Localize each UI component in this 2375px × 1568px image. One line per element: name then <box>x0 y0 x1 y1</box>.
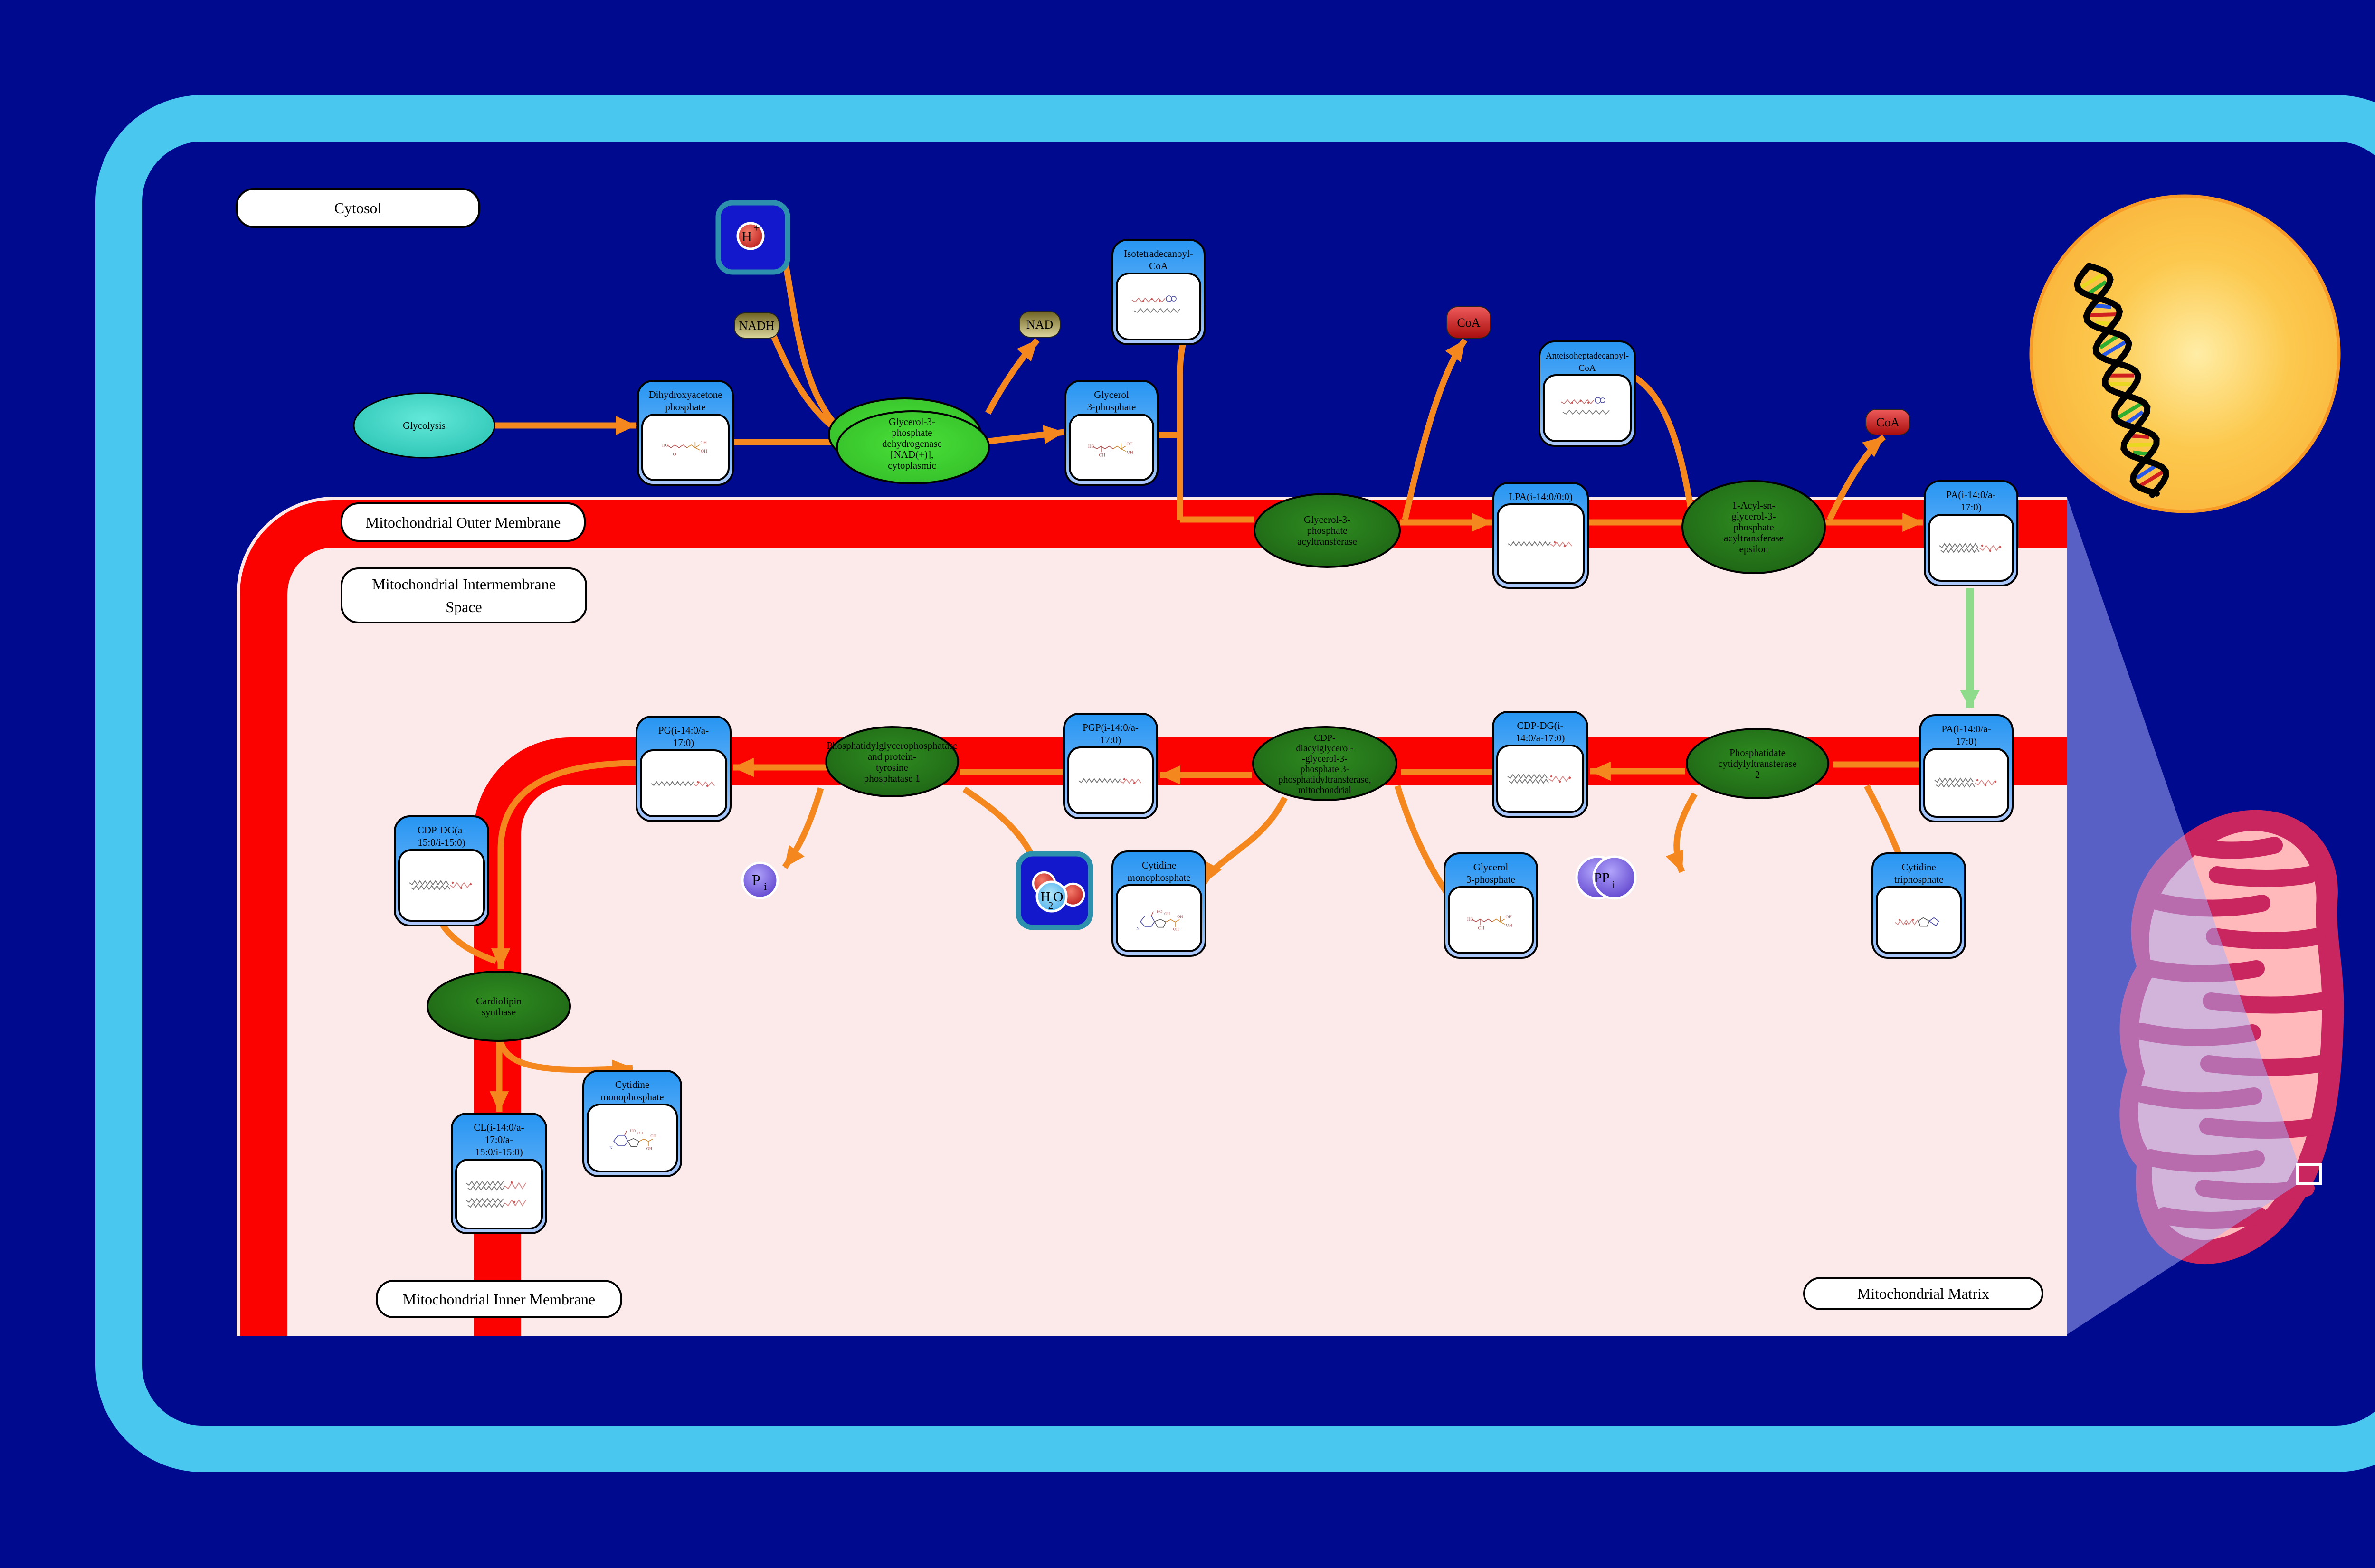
svg-text:phosphate: phosphate <box>1733 521 1774 533</box>
svg-text:PA(i-14:0/a-: PA(i-14:0/a- <box>1941 723 1991 735</box>
svg-text:15:0/i-15:0): 15:0/i-15:0) <box>418 837 465 848</box>
svg-text:i: i <box>764 880 767 892</box>
svg-text:CoA: CoA <box>1457 316 1480 330</box>
svg-text:phosphate: phosphate <box>665 401 705 413</box>
svg-text:N: N <box>1136 926 1139 931</box>
svg-text:diacylglycerol-: diacylglycerol- <box>1296 743 1353 754</box>
svg-text:phosphatase 1: phosphatase 1 <box>864 773 920 784</box>
svg-text:HO: HO <box>630 1128 636 1133</box>
svg-text:17:0): 17:0) <box>1960 501 1981 513</box>
svg-text:CDP-: CDP- <box>1314 733 1336 743</box>
svg-text:OH: OH <box>1164 911 1170 916</box>
svg-text:glycerol-3-: glycerol-3- <box>1731 510 1776 522</box>
svg-text:synthase: synthase <box>482 1006 516 1018</box>
svg-text:N: N <box>609 1145 612 1150</box>
svg-text:3-phosphate: 3-phosphate <box>1087 401 1136 413</box>
svg-text:Phosphatidate: Phosphatidate <box>1729 747 1786 758</box>
svg-text:tyrosine: tyrosine <box>876 762 908 773</box>
svg-text:Isotetradecanoyl-: Isotetradecanoyl- <box>1124 248 1193 259</box>
svg-text:17:0): 17:0) <box>1100 734 1121 746</box>
svg-text:i: i <box>1612 879 1615 890</box>
svg-text:dehydrogenase: dehydrogenase <box>882 438 942 449</box>
svg-text:cytoplasmic: cytoplasmic <box>888 460 936 471</box>
svg-text:epsilon: epsilon <box>1739 543 1768 555</box>
svg-text:PGP(i-14:0/a-: PGP(i-14:0/a- <box>1083 722 1139 733</box>
svg-text:Mitochondrial Matrix: Mitochondrial Matrix <box>1857 1285 1989 1302</box>
svg-text:Cytidine: Cytidine <box>1901 861 1936 873</box>
svg-text:17:0): 17:0) <box>673 737 694 748</box>
svg-text:14:0/a-17:0): 14:0/a-17:0) <box>1516 732 1565 744</box>
svg-text:O: O <box>673 453 676 457</box>
svg-text:OH: OH <box>650 1133 656 1138</box>
svg-text:phosphate: phosphate <box>892 427 932 438</box>
svg-text:NAD: NAD <box>1026 318 1053 331</box>
svg-text:OH: OH <box>1478 926 1485 931</box>
svg-text:-glycerol-3-: -glycerol-3- <box>1302 754 1348 764</box>
svg-text:Dihydroxyacetone: Dihydroxyacetone <box>648 389 722 400</box>
svg-text:PA(i-14:0/a-: PA(i-14:0/a- <box>1946 489 1995 501</box>
svg-text:Glycerol: Glycerol <box>1094 389 1129 400</box>
svg-text:Space: Space <box>446 598 482 615</box>
svg-text:mitochondrial: mitochondrial <box>1298 785 1352 795</box>
svg-text:Phosphatidylglycerophosphatase: Phosphatidylglycerophosphatase <box>826 740 957 751</box>
svg-text:17:0): 17:0) <box>1956 736 1976 747</box>
svg-text:Cytidine: Cytidine <box>1142 860 1176 871</box>
svg-text:Anteisoheptadecanoyl-: Anteisoheptadecanoyl- <box>1546 351 1629 361</box>
svg-text:PP: PP <box>1594 870 1609 886</box>
svg-text:H: H <box>741 229 752 245</box>
svg-text:3-phosphate: 3-phosphate <box>1466 874 1515 885</box>
svg-text:phosphate: phosphate <box>1307 525 1347 536</box>
svg-text:phosphate 3-: phosphate 3- <box>1301 764 1349 775</box>
svg-text:Cytidine: Cytidine <box>615 1079 649 1090</box>
svg-text:OH: OH <box>1177 914 1183 919</box>
svg-text:phosphatidyltransferase,: phosphatidyltransferase, <box>1279 775 1371 785</box>
svg-text:OH: OH <box>1126 442 1133 447</box>
svg-text:PG(i-14:0/a-: PG(i-14:0/a- <box>658 725 709 736</box>
svg-text:OH: OH <box>700 441 707 445</box>
svg-text:P: P <box>752 871 760 888</box>
svg-text:17:0/a-: 17:0/a- <box>485 1134 513 1145</box>
svg-text:acyltransferase: acyltransferase <box>1297 536 1357 547</box>
svg-text:Cardiolipin: Cardiolipin <box>476 995 522 1007</box>
svg-text:OH: OH <box>1506 924 1512 928</box>
svg-text:Mitochondrial Outer Membrane: Mitochondrial Outer Membrane <box>366 514 561 531</box>
svg-text:1-Acyl-sn-: 1-Acyl-sn- <box>1732 500 1776 511</box>
svg-text:CoA: CoA <box>1876 416 1900 429</box>
svg-text:OH: OH <box>1127 451 1133 455</box>
svg-text:2: 2 <box>1048 900 1054 911</box>
svg-text:CDP-DG(i-: CDP-DG(i- <box>1517 720 1564 731</box>
svg-text:CoA: CoA <box>1579 363 1596 373</box>
svg-text:HO: HO <box>1467 917 1474 922</box>
svg-text:HO: HO <box>1157 909 1162 914</box>
svg-text:CL(i-14:0/a-: CL(i-14:0/a- <box>474 1122 524 1133</box>
svg-text:and protein-: and protein- <box>868 751 916 762</box>
svg-text:OH: OH <box>637 1131 643 1135</box>
svg-text:Cytosol: Cytosol <box>334 199 382 217</box>
svg-text:OH: OH <box>1099 453 1106 458</box>
svg-text:O: O <box>1054 889 1064 905</box>
svg-text:LPA(i-14:0/0:0): LPA(i-14:0/0:0) <box>1509 491 1573 502</box>
svg-text:Mitochondrial Inner Membrane: Mitochondrial Inner Membrane <box>403 1291 595 1308</box>
svg-text:OH: OH <box>701 449 707 454</box>
svg-text:OH: OH <box>1505 915 1512 920</box>
svg-text:Glycerol-3-: Glycerol-3- <box>1304 514 1350 525</box>
svg-text:HO: HO <box>662 443 669 448</box>
svg-text:OH: OH <box>1173 927 1179 932</box>
svg-text:OH: OH <box>646 1146 652 1151</box>
svg-text:monophosphate: monophosphate <box>1128 872 1191 883</box>
svg-text:15:0/i-15:0): 15:0/i-15:0) <box>475 1146 522 1158</box>
svg-text:cytidylyltransferase: cytidylyltransferase <box>1718 758 1797 769</box>
svg-text:[NAD(+)],: [NAD(+)], <box>891 449 934 460</box>
svg-text:HO: HO <box>1088 444 1095 449</box>
svg-text:2: 2 <box>1755 769 1760 780</box>
svg-text:CoA: CoA <box>1149 260 1168 272</box>
svg-text:Glycolysis: Glycolysis <box>403 420 446 431</box>
svg-text:Glycerol: Glycerol <box>1473 861 1509 873</box>
svg-text:monophosphate: monophosphate <box>601 1091 664 1103</box>
svg-text:NADH: NADH <box>739 319 774 333</box>
svg-text:Mitochondrial Intermembrane: Mitochondrial Intermembrane <box>372 576 556 593</box>
svg-text:+: + <box>753 222 760 235</box>
svg-text:acyltransferase: acyltransferase <box>1724 532 1784 544</box>
svg-text:triphosphate: triphosphate <box>1894 874 1944 885</box>
svg-text:CDP-DG(a-: CDP-DG(a- <box>418 824 465 836</box>
svg-text:Glycerol-3-: Glycerol-3- <box>889 416 935 427</box>
